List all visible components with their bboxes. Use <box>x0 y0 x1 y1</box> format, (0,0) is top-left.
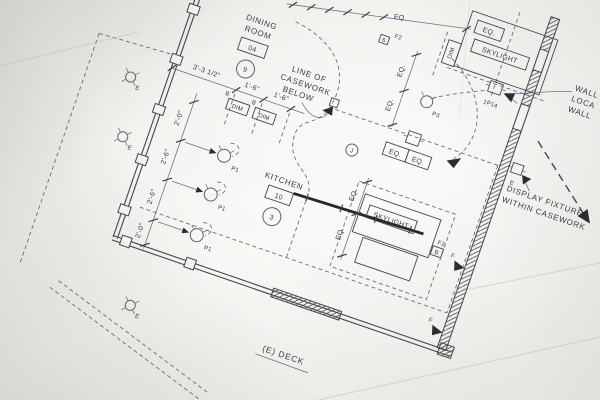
keynote-b: B <box>251 100 257 107</box>
light-tag: E <box>134 314 140 321</box>
skylight-top-right: EQ. SKYLIGHT DIM 1P14 <box>429 0 568 123</box>
skylight-fixture-symbol <box>488 81 504 96</box>
room-label-dining: DINING ROOM 04 9 <box>227 13 278 83</box>
pendant-light-p1: P1 <box>212 139 247 174</box>
eq-dimension-top-right: EQ. EQ. <box>380 47 421 129</box>
exterior-light-e: E <box>120 68 144 92</box>
pendant-tag: P1 <box>217 205 227 213</box>
right-wall: F F <box>421 11 559 350</box>
dim-box-label: DIM <box>231 104 244 113</box>
island-outline <box>355 237 418 280</box>
eq-label: EQ. <box>335 227 346 242</box>
dim-label: 3'-3 1/2" <box>192 64 221 80</box>
keynote-b: B <box>224 91 230 98</box>
pendant-tag: P1 <box>203 245 213 253</box>
eq-label: EQ. <box>388 148 403 159</box>
eq-label: EQ. <box>410 156 425 167</box>
svg-text:(E) DECK: (E) DECK <box>261 343 306 367</box>
junction-tag: J <box>349 148 354 155</box>
note-line-of-casework: LINE OF CASEWORK BELOW <box>272 62 345 123</box>
left-window-wall <box>110 0 220 239</box>
fixture-tag-f2: F2 <box>393 34 402 42</box>
dim-box-label: DIM <box>447 47 456 60</box>
top-dimension-chain: EQ. 6 F2 <box>285 0 472 69</box>
eq-label: EQ. <box>348 188 359 203</box>
casework-dimension-chain: 3'-3 1/2" 1'-6" 1'-6" DIM DIM B B <box>157 57 308 148</box>
room-label-kitchen: KITCHEN 10 3 <box>250 170 304 231</box>
keynote-bubble: 9 <box>242 66 248 74</box>
pendant-light-p1: P1 <box>199 178 234 213</box>
dim-label: 2'-6" <box>147 188 159 205</box>
keynote-6: 6 <box>381 38 387 45</box>
deck-label: (E) DECK <box>255 341 313 372</box>
light-tag: E <box>126 145 132 152</box>
pendant-tag: P3 <box>431 111 441 119</box>
casework-dashed-lines <box>140 60 498 313</box>
leader-arrowhead <box>519 175 531 187</box>
room-name: KITCHEN <box>264 170 305 192</box>
pendant-tag: P1 <box>230 166 240 174</box>
pendant-dimension-chain: 2'-0" 2'-6" 2'-6" 2'-0" <box>132 90 233 261</box>
exterior-light-e: E <box>120 296 144 320</box>
skylight-label: SKYLIGHT <box>481 47 519 66</box>
dim-label: 2'-6" <box>160 148 172 165</box>
wall-tag-f: F <box>428 318 434 325</box>
fixture-tag-1p14: 1P14 <box>482 99 498 110</box>
ceiling-fixture-symbol <box>405 131 421 147</box>
light-tag: E <box>134 85 140 92</box>
dim-box-label: DIM <box>257 113 270 122</box>
dim-label: 2'-0" <box>135 222 147 239</box>
dim-label: 2'-0" <box>174 110 186 127</box>
eq-eq-fixture-group: EQ. EQ. <box>382 125 437 170</box>
display-fixture-symbol <box>510 162 524 175</box>
skylight-center: SKYLIGHT F2 B <box>343 194 452 288</box>
eq-label: EQ. <box>385 98 396 113</box>
wall-hatch-segment <box>271 288 342 320</box>
eq-label: EQ. <box>393 14 407 23</box>
eq-label: EQ. <box>396 64 407 79</box>
note-wall-location: WALL LOCA WALL <box>508 63 600 121</box>
exterior-light-e: E <box>112 128 136 152</box>
floor-plan-drawing: F F EQ. SKYLIGHT DIM 1P14 <box>0 0 600 400</box>
blueprint-photo: F F EQ. SKYLIGHT DIM 1P14 <box>0 0 600 400</box>
leader-arrowhead <box>322 104 335 116</box>
leader-arrowhead <box>445 154 461 170</box>
dim-label: 1'-6" <box>243 82 260 94</box>
note-display-fixture: E DISPLAY FIXTURE WITHIN CASEWORK <box>497 161 598 232</box>
wall-tag-f: F <box>450 253 456 260</box>
pendant-light-p1: P1 <box>185 219 220 254</box>
keynote-bubble: 3 <box>268 214 274 222</box>
